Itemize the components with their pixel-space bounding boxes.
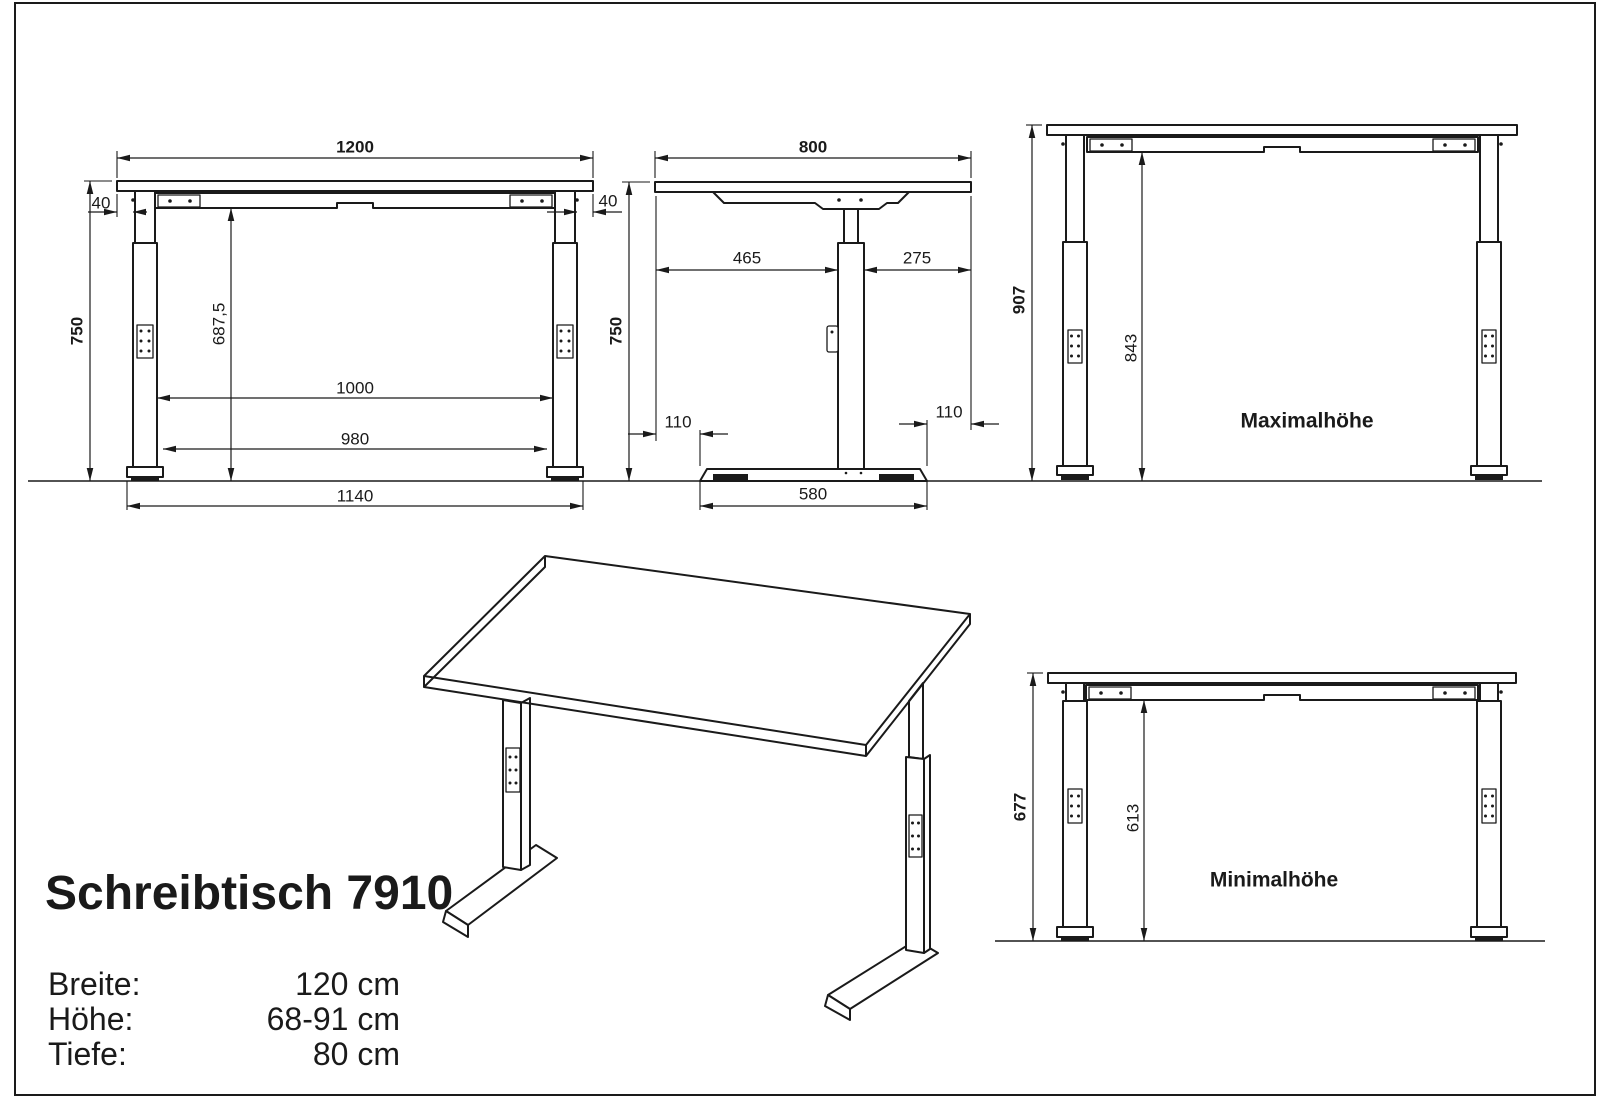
dim-front-leg-inner-width: 1000 — [336, 380, 374, 397]
spec-row-depth: Tiefe: 80 cm — [48, 1036, 400, 1072]
dim-max-clearance: 843 — [1123, 334, 1140, 362]
dim-front-overhang-right: 40 — [599, 193, 618, 210]
min-view-caption: Minimalhöhe — [1210, 870, 1338, 891]
dim-side-foot-offset-front: 110 — [664, 414, 691, 431]
dim-side-top-rear-overhang: 275 — [903, 250, 931, 267]
dim-front-clearance: 687,5 — [211, 303, 228, 346]
dim-min-height: 677 — [1012, 793, 1029, 821]
spec-label-depth: Tiefe: — [48, 1036, 127, 1073]
product-title: Schreibtisch 7910 — [45, 866, 453, 921]
perspective-view-drawing — [424, 556, 970, 1020]
datasheet-page: 1200 40 40 750 687,5 1000 980 1140 800 7… — [0, 0, 1600, 1100]
dim-max-height: 907 — [1011, 286, 1028, 314]
dim-side-height: 750 — [608, 317, 625, 345]
spec-value-width: 120 cm — [295, 966, 400, 1003]
dim-min-clearance: 613 — [1125, 804, 1142, 832]
min-height-view-drawing — [995, 673, 1545, 941]
spec-value-depth: 80 cm — [313, 1036, 400, 1073]
spec-value-height: 68-91 cm — [267, 1001, 400, 1038]
dim-side-base-depth: 580 — [799, 486, 827, 503]
spec-row-width: Breite: 120 cm — [48, 966, 400, 1002]
dim-side-foot-offset-rear: 110 — [935, 404, 962, 421]
dim-front-height: 750 — [69, 317, 86, 345]
technical-drawing-canvas — [0, 0, 1600, 1100]
dim-front-overhang-left: 40 — [92, 195, 111, 212]
max-view-caption: Maximalhöhe — [1240, 411, 1373, 432]
dim-front-feet-outer-width: 1140 — [337, 488, 374, 505]
spec-label-height: Höhe: — [48, 1001, 133, 1038]
spec-label-width: Breite: — [48, 966, 140, 1003]
dim-side-top-front-overhang: 465 — [733, 250, 761, 267]
dim-front-feet-inner-width: 980 — [341, 431, 369, 448]
dim-front-top-width: 1200 — [336, 139, 374, 156]
front-view-drawing — [84, 151, 622, 510]
side-view-drawing — [622, 151, 999, 510]
spec-row-height: Höhe: 68-91 cm — [48, 1001, 400, 1037]
dim-side-top-depth: 800 — [799, 139, 827, 156]
